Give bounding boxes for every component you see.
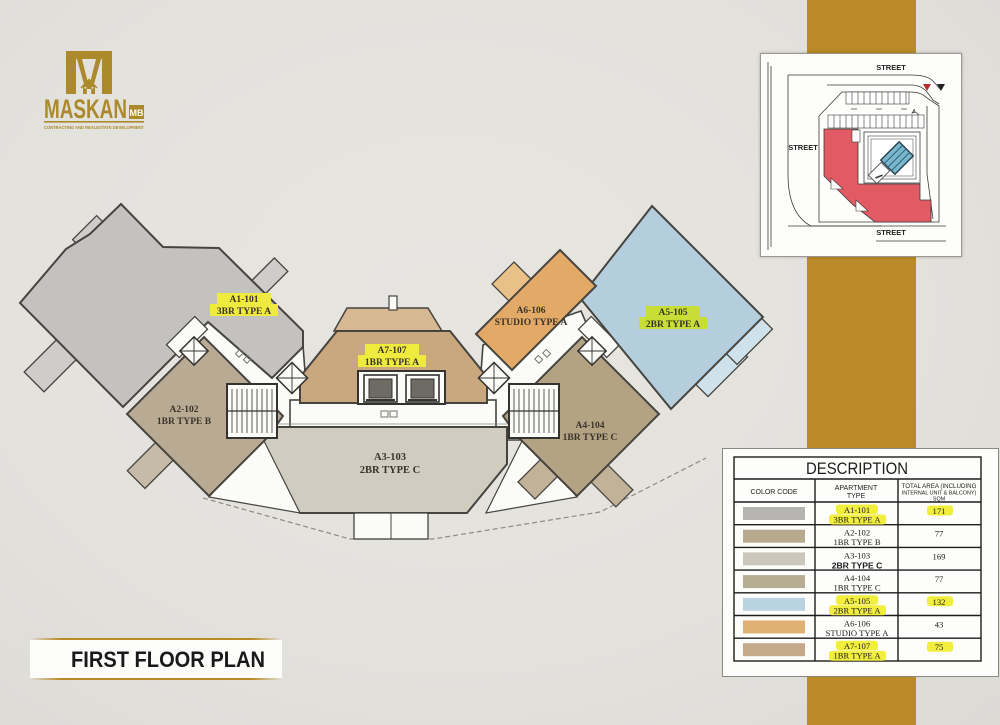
svg-text:A2-102: A2-102 bbox=[844, 528, 870, 538]
svg-text:A1-101: A1-101 bbox=[844, 505, 870, 515]
svg-text:APARTMENT: APARTMENT bbox=[835, 485, 878, 492]
svg-text:DESCRIPTION: DESCRIPTION bbox=[806, 459, 908, 478]
svg-text:COLOR CODE: COLOR CODE bbox=[750, 489, 797, 496]
svg-text:STUDIO TYPE A: STUDIO TYPE A bbox=[495, 318, 568, 328]
svg-text:STUDIO TYPE A: STUDIO TYPE A bbox=[826, 628, 890, 638]
svg-text:3BR TYPE A: 3BR TYPE A bbox=[833, 515, 881, 525]
svg-text:A4-104: A4-104 bbox=[844, 573, 871, 583]
svg-text:TOTAL AREA (INCLUDING: TOTAL AREA (INCLUDING bbox=[902, 483, 977, 490]
svg-text:2BR TYPE A: 2BR TYPE A bbox=[646, 320, 700, 330]
svg-text:1BR TYPE C: 1BR TYPE C bbox=[833, 583, 880, 593]
svg-text:3BR TYPE A: 3BR TYPE A bbox=[217, 307, 271, 317]
svg-text:A3-103: A3-103 bbox=[374, 452, 406, 463]
svg-text:2BR TYPE C: 2BR TYPE C bbox=[360, 465, 420, 476]
svg-text:43: 43 bbox=[935, 620, 944, 630]
svg-text:SQM: SQM bbox=[933, 497, 946, 503]
svg-text:MB: MB bbox=[130, 108, 144, 118]
svg-text:A1-101: A1-101 bbox=[229, 295, 258, 305]
svg-text:MASKAN: MASKAN bbox=[44, 94, 127, 124]
svg-text:171: 171 bbox=[933, 506, 946, 516]
svg-text:1BR TYPE A: 1BR TYPE A bbox=[833, 651, 881, 661]
svg-text:75: 75 bbox=[935, 642, 944, 652]
svg-text:A6-106: A6-106 bbox=[516, 306, 545, 316]
svg-text:CONTRACTING AND REALESTATE DEV: CONTRACTING AND REALESTATE DEVELOPMENT bbox=[44, 125, 144, 130]
svg-text:A2-102: A2-102 bbox=[169, 405, 198, 415]
svg-text:132: 132 bbox=[933, 597, 946, 607]
svg-text:A3-103: A3-103 bbox=[844, 550, 870, 560]
svg-text:A6-106: A6-106 bbox=[844, 619, 871, 629]
svg-text:77: 77 bbox=[935, 574, 944, 584]
svg-text:FIRST FLOOR PLAN: FIRST FLOOR PLAN bbox=[71, 647, 265, 672]
svg-text:1BR TYPE C: 1BR TYPE C bbox=[563, 433, 618, 443]
svg-text:2BR TYPE C: 2BR TYPE C bbox=[832, 560, 883, 570]
svg-text:TYPE: TYPE bbox=[847, 493, 866, 500]
svg-text:STREET: STREET bbox=[876, 228, 906, 237]
svg-text:A5-105: A5-105 bbox=[844, 596, 870, 606]
svg-text:A7-107: A7-107 bbox=[377, 346, 406, 356]
svg-text:169: 169 bbox=[933, 551, 946, 561]
svg-text:1BR TYPE A: 1BR TYPE A bbox=[365, 358, 419, 368]
svg-text:STREET: STREET bbox=[876, 63, 906, 72]
svg-text:A7-107: A7-107 bbox=[844, 641, 871, 651]
svg-text:STREET: STREET bbox=[788, 143, 818, 152]
svg-text:1BR TYPE B: 1BR TYPE B bbox=[833, 537, 880, 547]
svg-text:77: 77 bbox=[935, 529, 944, 539]
svg-text:A4-104: A4-104 bbox=[575, 421, 604, 431]
svg-text:2BR TYPE A: 2BR TYPE A bbox=[833, 605, 881, 615]
svg-text:1BR TYPE B: 1BR TYPE B bbox=[157, 417, 212, 427]
svg-text:A5-105: A5-105 bbox=[658, 308, 687, 318]
